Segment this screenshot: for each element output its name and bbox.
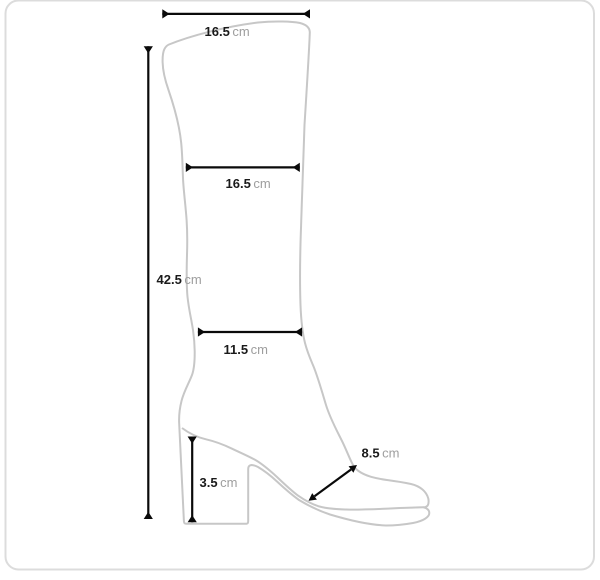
svg-text:11.5cm: 11.5cm xyxy=(224,342,268,357)
svg-text:42.5cm: 42.5cm xyxy=(157,272,202,287)
svg-text:16.5cm: 16.5cm xyxy=(226,176,271,191)
svg-text:16.5cm: 16.5cm xyxy=(205,24,250,39)
